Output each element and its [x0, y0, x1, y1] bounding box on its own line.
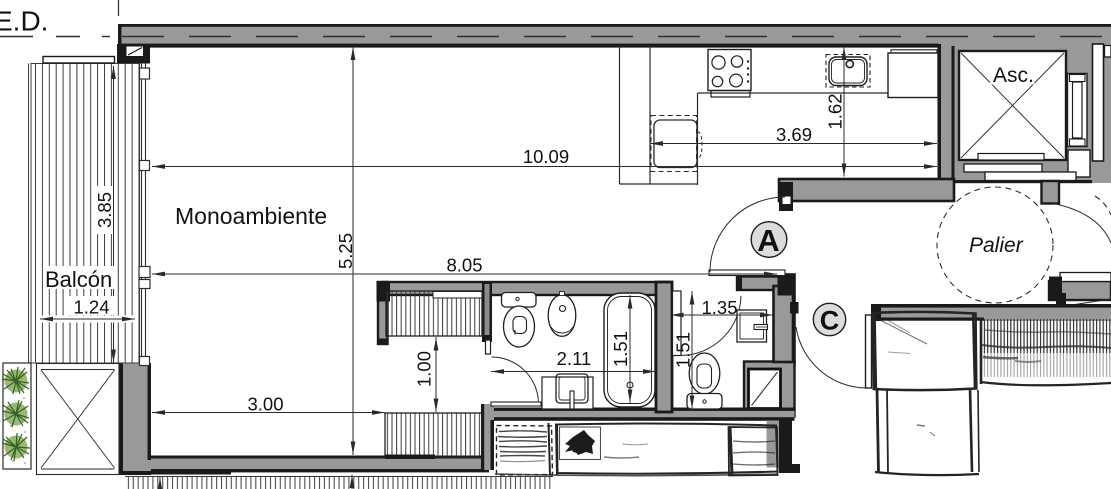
- svg-text:Palier: Palier: [969, 234, 1024, 257]
- svg-text:5.25: 5.25: [335, 233, 356, 269]
- svg-text:1.62: 1.62: [825, 93, 846, 129]
- svg-text:3.85: 3.85: [94, 192, 115, 228]
- svg-text:Asc.: Asc.: [993, 64, 1034, 87]
- svg-text:Balcón: Balcón: [45, 267, 112, 292]
- svg-text:Monoambiente: Monoambiente: [175, 203, 327, 229]
- svg-text:E.D.: E.D.: [0, 6, 48, 37]
- svg-text:1.35: 1.35: [701, 297, 737, 318]
- svg-text:10.09: 10.09: [523, 146, 569, 167]
- svg-text:1.51: 1.51: [673, 332, 694, 368]
- svg-text:A: A: [757, 223, 779, 258]
- svg-text:3.69: 3.69: [776, 124, 812, 145]
- svg-text:2.11: 2.11: [557, 348, 592, 369]
- svg-text:1.00: 1.00: [414, 351, 435, 387]
- svg-text:C: C: [820, 306, 840, 336]
- svg-text:8.05: 8.05: [446, 255, 482, 276]
- svg-text:3.00: 3.00: [247, 394, 283, 415]
- svg-text:1.51: 1.51: [610, 331, 631, 367]
- svg-text:1.24: 1.24: [73, 297, 109, 318]
